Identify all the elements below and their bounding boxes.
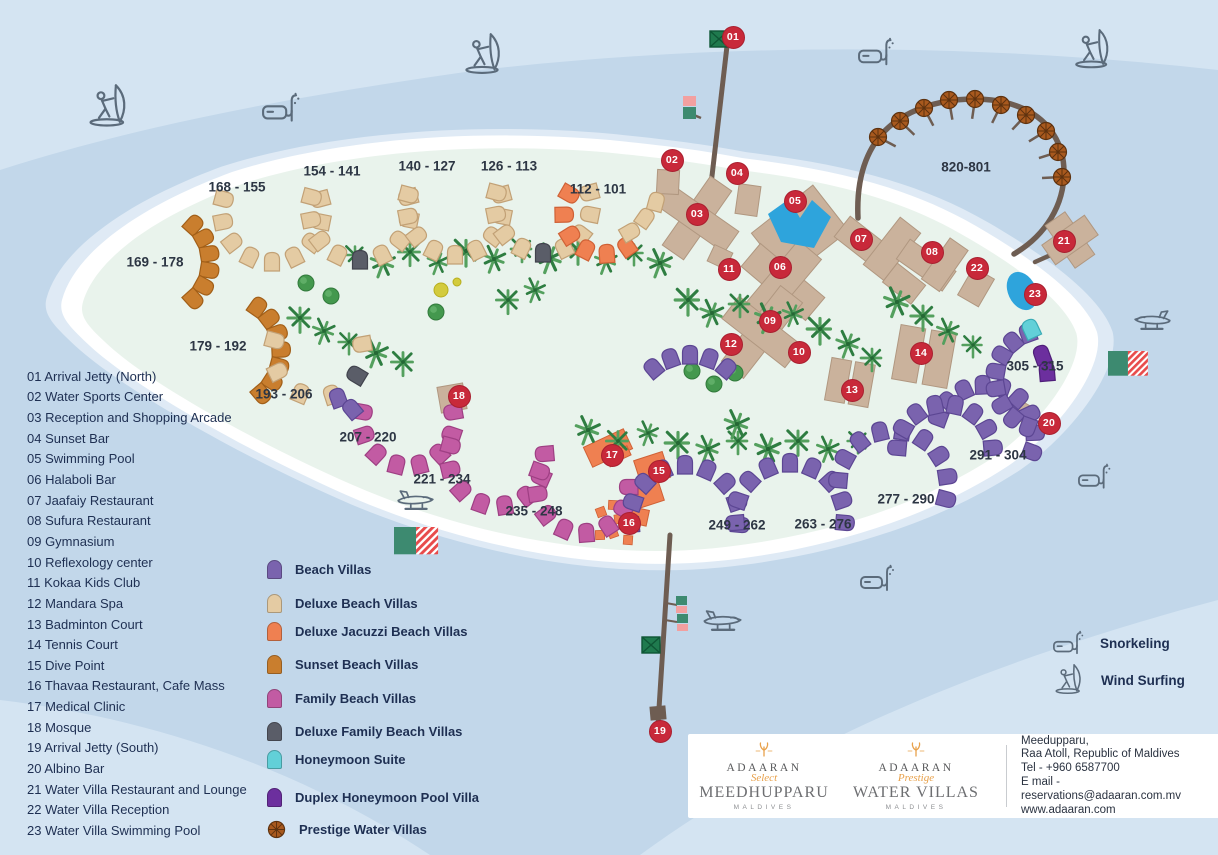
footer-divider [1006,745,1007,807]
facility-item-06: 06 Halaboli Bar [27,469,247,490]
villa-range-label: 140 - 127 [398,159,455,174]
map-marker-21: 21 [1053,230,1076,253]
yellow-tree [453,278,461,286]
map-marker-02: 02 [661,149,684,172]
legend-label: Prestige Water Villas [299,822,427,837]
villa-djv [555,207,574,222]
legend-item: Duplex Honeymoon Pool Villa [267,788,479,807]
prestige-water-villa [1050,144,1067,161]
villa-bv [783,454,798,473]
villa-range-label: 179 - 192 [189,339,246,354]
villa-range-label: 154 - 141 [303,164,360,179]
villa-fbv [535,446,555,463]
map-marker-10: 10 [788,341,811,364]
wheat-emblem-icon [754,742,774,757]
villa-range-label: 235 - 248 [505,504,562,519]
activity-label: Wind Surfing [1101,673,1185,688]
villa-range-label: 207 - 220 [339,430,396,445]
map-marker-08: 08 [921,241,944,264]
legend-item: Deluxe Beach Villas [267,594,418,613]
facility-item-07: 07 Jaafaiy Restaurant [27,490,247,511]
address-line: E mail - reservations@adaaran.com.mv [1021,776,1218,804]
brand-country: MALDIVES [688,804,840,811]
facility-item-02: 02 Water Sports Center [27,387,247,408]
villa-dfv [536,244,551,263]
villa-dfv [353,251,368,270]
facility-item-21: 21 Water Villa Restaurant and Lounge [27,779,247,800]
brand-prestige: ADAARAN Prestige WATER VILLAS MALDIVES [840,742,992,811]
legend-swatch [267,689,282,708]
villa-range-label: 126 - 113 [481,159,537,174]
villa-dbv [265,253,280,272]
facility-item-01: 01 Arrival Jetty (North) [27,366,247,387]
legend-swatch [267,722,282,741]
legend-swatch [267,594,282,613]
facility-item-13: 13 Badminton Court [27,614,247,635]
legend-swatch [267,622,282,641]
map-marker-20: 20 [1038,412,1061,435]
villa-range-label: 820-801 [941,160,991,175]
map-marker-18: 18 [448,385,471,408]
legend-label: Sunset Beach Villas [295,657,418,672]
map-marker-17: 17 [601,444,624,467]
prestige-water-villa [1054,169,1071,186]
prestige-water-villa [1038,123,1055,140]
brand-tier: Prestige [840,772,992,784]
dive-flag-icon [1108,351,1148,376]
footer-brand-box: ADAARAN Select MEEDHUPPARU MALDIVES ADAA… [688,734,1218,818]
map-marker-13: 13 [841,379,864,402]
facility-item-18: 18 Mosque [27,717,247,738]
legend-swatch [267,655,282,674]
snorkel-icon [1053,630,1085,657]
facility-item-04: 04 Sunset Bar [27,428,247,449]
map-marker-23: 23 [1024,283,1047,306]
activity-label: Snorkeling [1100,636,1170,651]
prestige-water-villa [892,113,909,130]
windsurf-icon [1053,664,1086,697]
villa-range-label: 305 - 315 [1006,359,1063,374]
facility-item-22: 22 Water Villa Reception [27,799,247,820]
villa-range-label: 168 - 155 [208,180,265,195]
legend-label: Duplex Honeymoon Pool Villa [295,790,479,805]
prestige-water-villa [993,97,1010,114]
facility-item-12: 12 Mandara Spa [27,593,247,614]
villa-bv [828,472,848,489]
brand-tier: Select [688,772,840,784]
villa-bv [678,456,693,475]
brand-resort: MEEDHUPPARU [688,784,840,802]
bush [684,363,700,379]
brand-select: ADAARAN Select MEEDHUPPARU MALDIVES [688,742,840,811]
legend-label: Beach Villas [295,562,371,577]
legend-item: Sunset Beach Villas [267,655,418,674]
villa-range-label: 277 - 290 [877,492,934,507]
facility-item-14: 14 Tennis Court [27,634,247,655]
prestige-umbrella-icon [267,820,286,839]
map-marker-19: 19 [649,720,672,743]
brand-resort: WATER VILLAS [840,784,992,802]
map-marker-01: 01 [722,26,745,49]
villa-fbv [578,523,594,543]
facility-item-11: 11 Kokaa Kids Club [27,572,247,593]
legend-label: Family Beach Villas [295,691,416,706]
legend-item: Honeymoon Suite [267,750,406,769]
villa-range-label: 291 - 304 [969,448,1026,463]
address-line: Tel - +960 6587700 [1021,762,1218,776]
facility-item-16: 16 Thavaa Restaurant, Cafe Mass [27,676,247,697]
activity-legend-item: Snorkeling [1053,630,1170,657]
facility-item-23: 23 Water Villa Swimming Pool [27,820,247,841]
legend-label: Deluxe Jacuzzi Beach Villas [295,624,467,639]
facility-item-15: 15 Dive Point [27,655,247,676]
villa-range-label: 249 - 262 [708,518,765,533]
yellow-tree [434,283,448,297]
prestige-water-villa [967,91,984,108]
map-marker-22: 22 [966,257,989,280]
activity-legend-item: Wind Surfing [1053,664,1185,697]
dive-flag-icon [394,527,438,554]
legend-item: Family Beach Villas [267,689,416,708]
building [735,184,761,217]
address-line: Raa Atoll, Republic of Maldives [1021,748,1218,762]
villa-bv [937,468,958,486]
facility-item-17: 17 Medical Clinic [27,696,247,717]
address-line: www.adaaran.com [1021,804,1218,818]
prestige-water-villa [1018,107,1035,124]
map-marker-14: 14 [910,342,933,365]
legend-item: Deluxe Jacuzzi Beach Villas [267,622,467,641]
legend-swatch [267,788,282,807]
facility-list: 01 Arrival Jetty (North)02 Water Sports … [27,366,247,841]
prestige-water-villa [916,100,933,117]
villa-fbv [527,485,548,503]
villa-djv [599,244,615,264]
villa-range-label: 263 - 276 [794,517,851,532]
map-marker-15: 15 [648,460,671,483]
map-marker-09: 09 [759,310,782,333]
map-marker-03: 03 [686,203,709,226]
building [656,169,679,194]
map-marker-04: 04 [726,162,749,185]
legend-item: Prestige Water Villas [267,820,427,839]
villa-range-label: 169 - 178 [126,255,183,270]
facility-item-09: 09 Gymnasium [27,531,247,552]
prestige-water-villa [870,129,887,146]
bush [428,304,444,320]
legend-item: Deluxe Family Beach Villas [267,722,462,741]
legend-label: Honeymoon Suite [295,752,406,767]
villa-range-label: 221 - 234 [413,472,470,487]
legend-item: Beach Villas [267,560,371,579]
facility-item-19: 19 Arrival Jetty (South) [27,738,247,759]
address-line: Meedupparu, [1021,735,1218,749]
bush [298,275,314,291]
map-marker-11: 11 [718,258,741,281]
legend-swatch [267,560,282,579]
villa-range-label: 193 - 206 [255,387,312,402]
legend-label: Deluxe Beach Villas [295,596,418,611]
legend-swatch [267,750,282,769]
brand-country: MALDIVES [840,804,992,811]
prestige-water-villa [941,92,958,109]
villa-bv [683,346,698,365]
map-marker-05: 05 [784,190,807,213]
facility-item-08: 08 Sufura Restaurant [27,510,247,531]
facility-item-03: 03 Reception and Shopping Arcade [27,407,247,428]
facility-item-20: 20 Albino Bar [27,758,247,779]
map-marker-07: 07 [850,228,873,251]
map-marker-16: 16 [618,512,641,535]
villa-range-label: 112 - 101 [570,182,626,197]
resort-address: Meedupparu,Raa Atoll, Republic of Maldiv… [1021,735,1218,818]
wheat-emblem-icon [906,742,926,757]
villa-dbv [448,246,463,265]
resort-map-page: 01 Arrival Jetty (North)02 Water Sports … [0,0,1218,855]
bush [706,376,722,392]
villa-bv [887,440,907,457]
map-marker-12: 12 [720,333,743,356]
bush [323,288,339,304]
map-marker-06: 06 [769,256,792,279]
legend-label: Deluxe Family Beach Villas [295,724,462,739]
facility-item-05: 05 Swimming Pool [27,449,247,470]
facility-item-10: 10 Reflexology center [27,552,247,573]
